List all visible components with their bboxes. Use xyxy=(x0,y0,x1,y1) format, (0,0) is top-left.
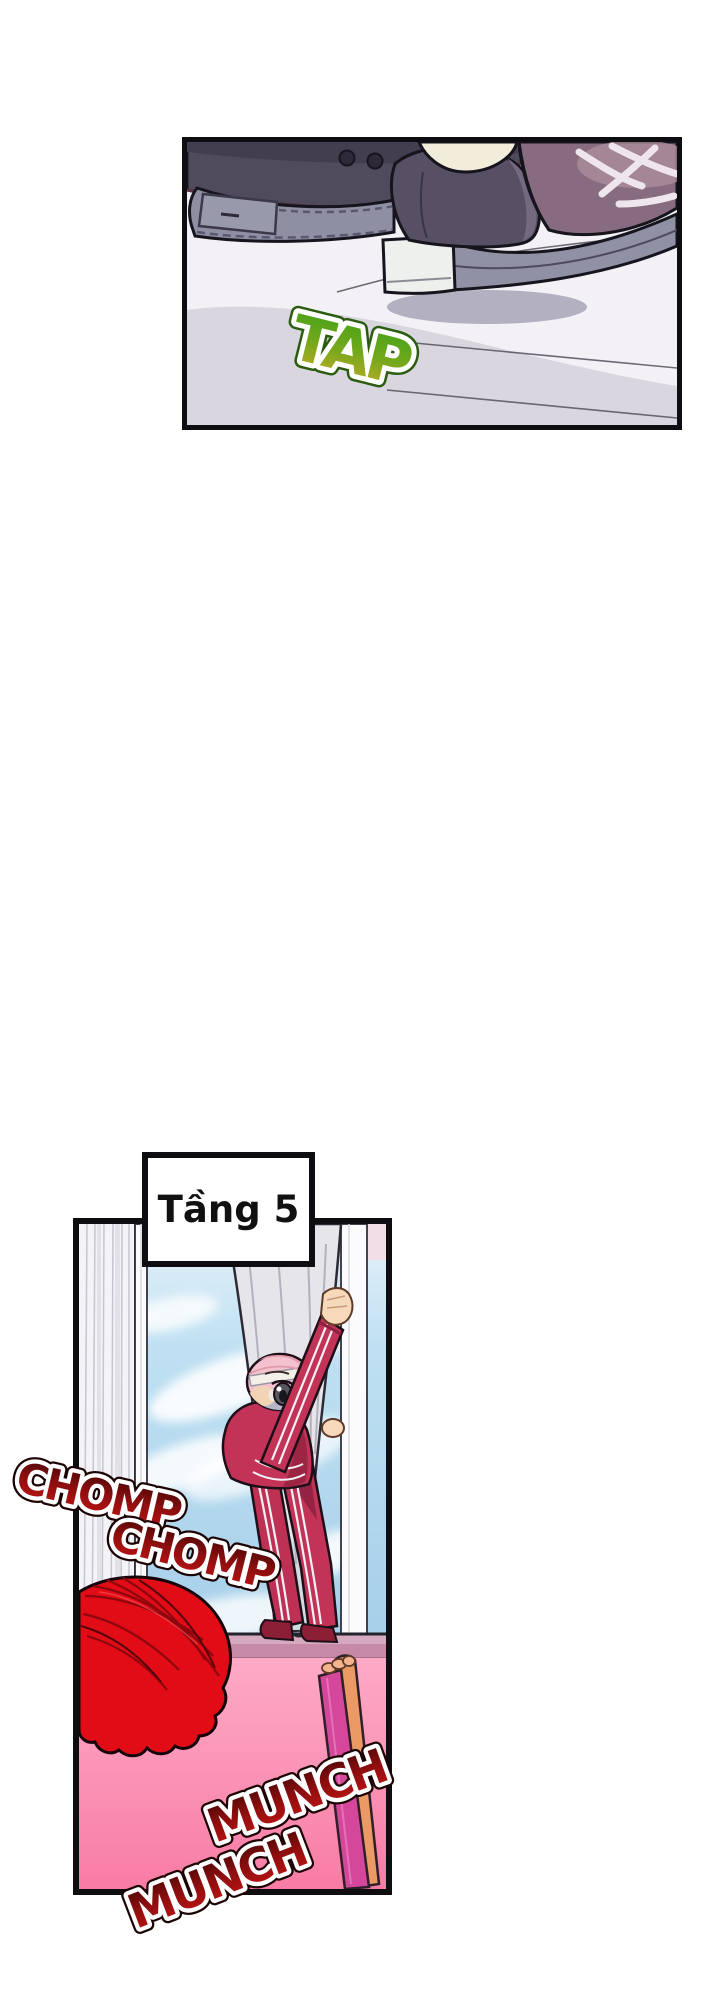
lower-hand xyxy=(322,1419,344,1437)
panel-window xyxy=(73,1218,392,1895)
comic-page: { "page": {"width": 720, "height": 2000,… xyxy=(0,0,720,2000)
shoe-shadow xyxy=(387,290,587,324)
red-hair xyxy=(79,1577,230,1756)
panel-window-art xyxy=(79,1224,386,1889)
caption-box: Tầng 5 xyxy=(142,1152,315,1267)
caption-text: Tầng 5 xyxy=(158,1188,300,1231)
window-frame-right xyxy=(341,1224,386,1642)
panel-sneakers-art: TAP TAP TAP xyxy=(187,142,677,425)
panel-sneakers: TAP TAP TAP xyxy=(182,137,682,430)
